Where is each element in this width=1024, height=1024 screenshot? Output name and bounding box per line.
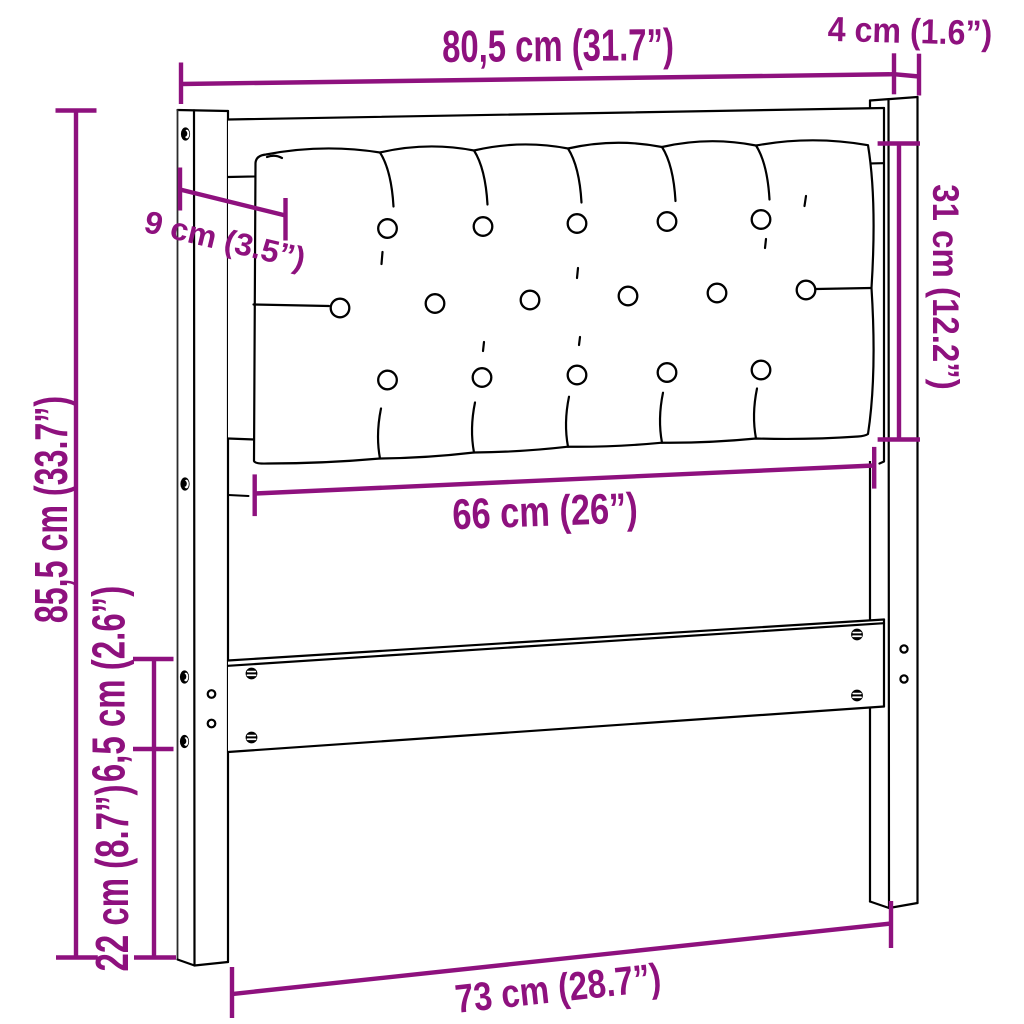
svg-text:66 cm (26”): 66 cm (26”) [452, 485, 639, 539]
svg-text:4 cm (1.6”): 4 cm (1.6”) [827, 11, 993, 54]
svg-text:31 cm (12.2”): 31 cm (12.2”) [925, 184, 966, 389]
svg-text:22 cm (8.7”): 22 cm (8.7”) [88, 785, 139, 972]
svg-text:6,5 cm (2.6”): 6,5 cm (2.6”) [84, 586, 135, 782]
svg-text:80,5 cm (31.7”): 80,5 cm (31.7”) [442, 20, 674, 72]
svg-text:85,5 cm (33.7”): 85,5 cm (33.7”) [26, 396, 77, 623]
